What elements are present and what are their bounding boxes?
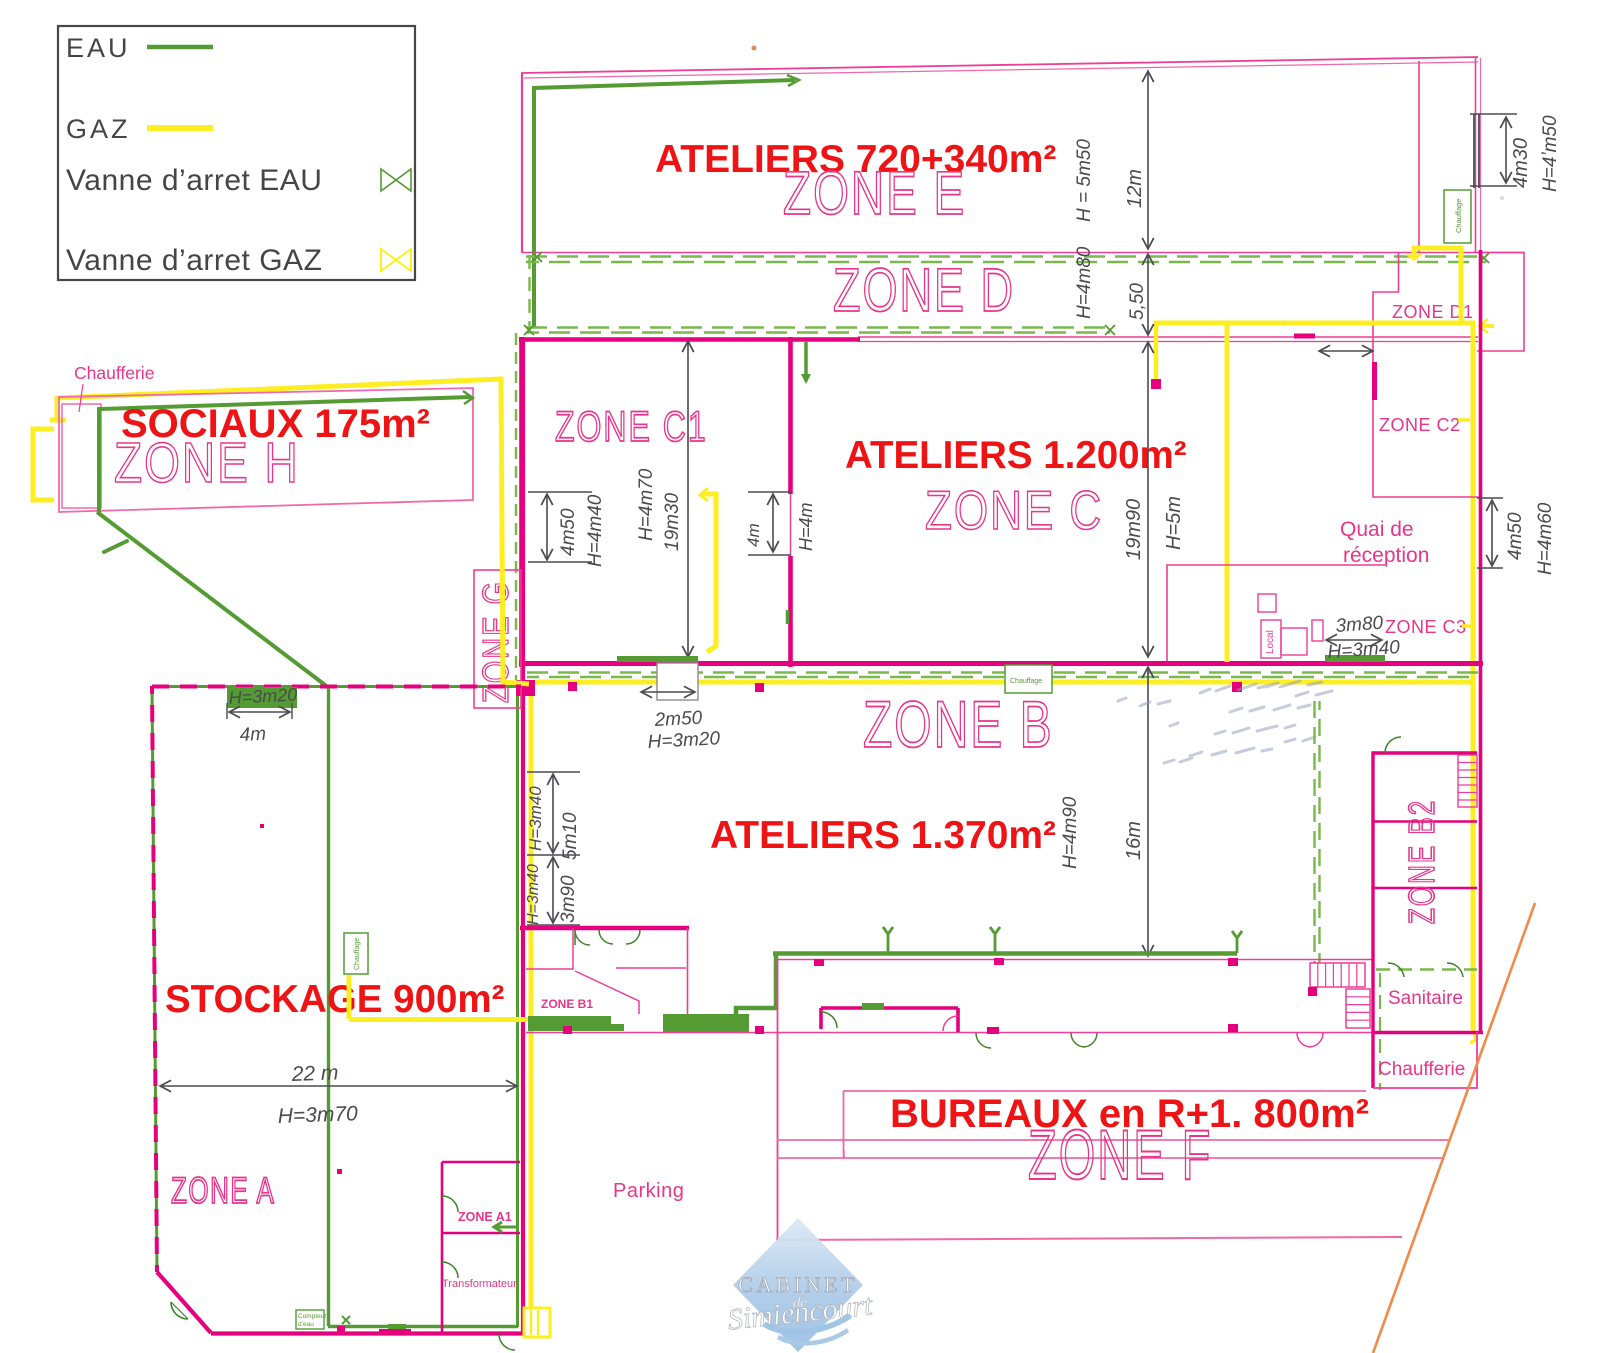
svg-text:ZONE C2: ZONE C2 [1379, 415, 1461, 435]
svg-text:12m: 12m [1124, 169, 1146, 208]
svg-text:H=4m: H=4m [796, 502, 816, 551]
svg-text:ATELIERS 1.370m²: ATELIERS 1.370m² [710, 814, 1056, 857]
svg-text:ZONE B: ZONE B [863, 689, 1054, 762]
svg-text:d’eau: d’eau [298, 1321, 314, 1328]
svg-text:GAZ: GAZ [66, 114, 131, 144]
svg-text:ZONE A1: ZONE A1 [458, 1210, 512, 1224]
svg-text:Quai de: Quai de [1340, 518, 1414, 541]
svg-text:4m: 4m [239, 724, 266, 746]
svg-text:4m50: 4m50 [558, 508, 579, 556]
svg-text:19m30: 19m30 [662, 492, 683, 551]
svg-text:ZONE C: ZONE C [925, 479, 1103, 541]
svg-text:H = 5m50: H = 5m50 [1074, 139, 1095, 222]
svg-text:ZONE C1: ZONE C1 [555, 403, 708, 450]
svg-text:H=4m80: H=4m80 [1074, 246, 1095, 319]
svg-text:5,50: 5,50 [1127, 283, 1148, 320]
svg-text:réception: réception [1343, 544, 1429, 567]
svg-text:H=5m: H=5m [1163, 496, 1185, 550]
svg-text:22 m: 22 m [290, 1061, 338, 1086]
svg-text:Transformateur: Transformateur [442, 1278, 517, 1290]
svg-text:ZONE H: ZONE H [114, 432, 300, 494]
svg-text:H=3m70: H=3m70 [277, 1102, 358, 1128]
svg-text:ZONE E: ZONE E [783, 158, 966, 227]
svg-text:ZONE B1: ZONE B1 [541, 997, 593, 1011]
svg-text:Chauffage: Chauffage [1454, 199, 1463, 233]
svg-text:H=3m40: H=3m40 [525, 864, 542, 925]
svg-text:4m: 4m [744, 523, 763, 547]
svg-text:H=4ʼm50: H=4ʼm50 [1540, 115, 1561, 192]
svg-text:3m90: 3m90 [558, 875, 579, 923]
svg-text:4m50: 4m50 [1505, 512, 1526, 560]
svg-text:3m80: 3m80 [1335, 613, 1384, 637]
svg-text:2m50: 2m50 [653, 708, 703, 732]
svg-text:ZONE D: ZONE D [833, 256, 1015, 325]
svg-text:Chauffage: Chauffage [354, 938, 361, 970]
svg-text:Compteur: Compteur [298, 1313, 327, 1320]
svg-text:Local: Local [1265, 630, 1276, 654]
svg-text:H=3m20: H=3m20 [228, 684, 297, 708]
svg-text:ZONE C3: ZONE C3 [1385, 617, 1467, 637]
svg-text:19m90: 19m90 [1123, 499, 1145, 560]
svg-text:Parking: Parking [613, 1180, 684, 1202]
svg-text:Chauffage: Chauffage [1010, 678, 1042, 685]
svg-text:Vanne d’arret GAZ: Vanne d’arret GAZ [66, 244, 322, 277]
svg-text:Sanitaire: Sanitaire [1388, 988, 1463, 1009]
svg-text:ATELIERS 1.200m²: ATELIERS 1.200m² [845, 434, 1187, 477]
svg-text:H=4m40: H=4m40 [585, 494, 606, 567]
svg-text:16m: 16m [1123, 821, 1145, 860]
svg-text:Vanne d’arret EAU: Vanne d’arret EAU [66, 164, 322, 197]
svg-text:ZONE F: ZONE F [1028, 1115, 1212, 1194]
svg-text:4m30: 4m30 [1510, 138, 1532, 188]
svg-text:STOCKAGE 900m²: STOCKAGE 900m² [165, 978, 505, 1021]
svg-text:H=4m60: H=4m60 [1535, 502, 1556, 575]
svg-text:Chaufferie: Chaufferie [1378, 1059, 1465, 1080]
svg-text:ZONE A: ZONE A [171, 1169, 275, 1211]
svg-text:H=4m90: H=4m90 [1060, 796, 1081, 869]
svg-text:Chaufferie: Chaufferie [74, 363, 154, 383]
svg-text:H=3m20: H=3m20 [647, 728, 721, 753]
svg-text:H=3m40: H=3m40 [526, 786, 545, 851]
svg-text:H=4m70: H=4m70 [636, 468, 657, 541]
svg-text:ZONE B2: ZONE B2 [1401, 799, 1442, 924]
svg-text:5m10: 5m10 [560, 812, 581, 860]
svg-text:EAU: EAU [66, 33, 131, 63]
